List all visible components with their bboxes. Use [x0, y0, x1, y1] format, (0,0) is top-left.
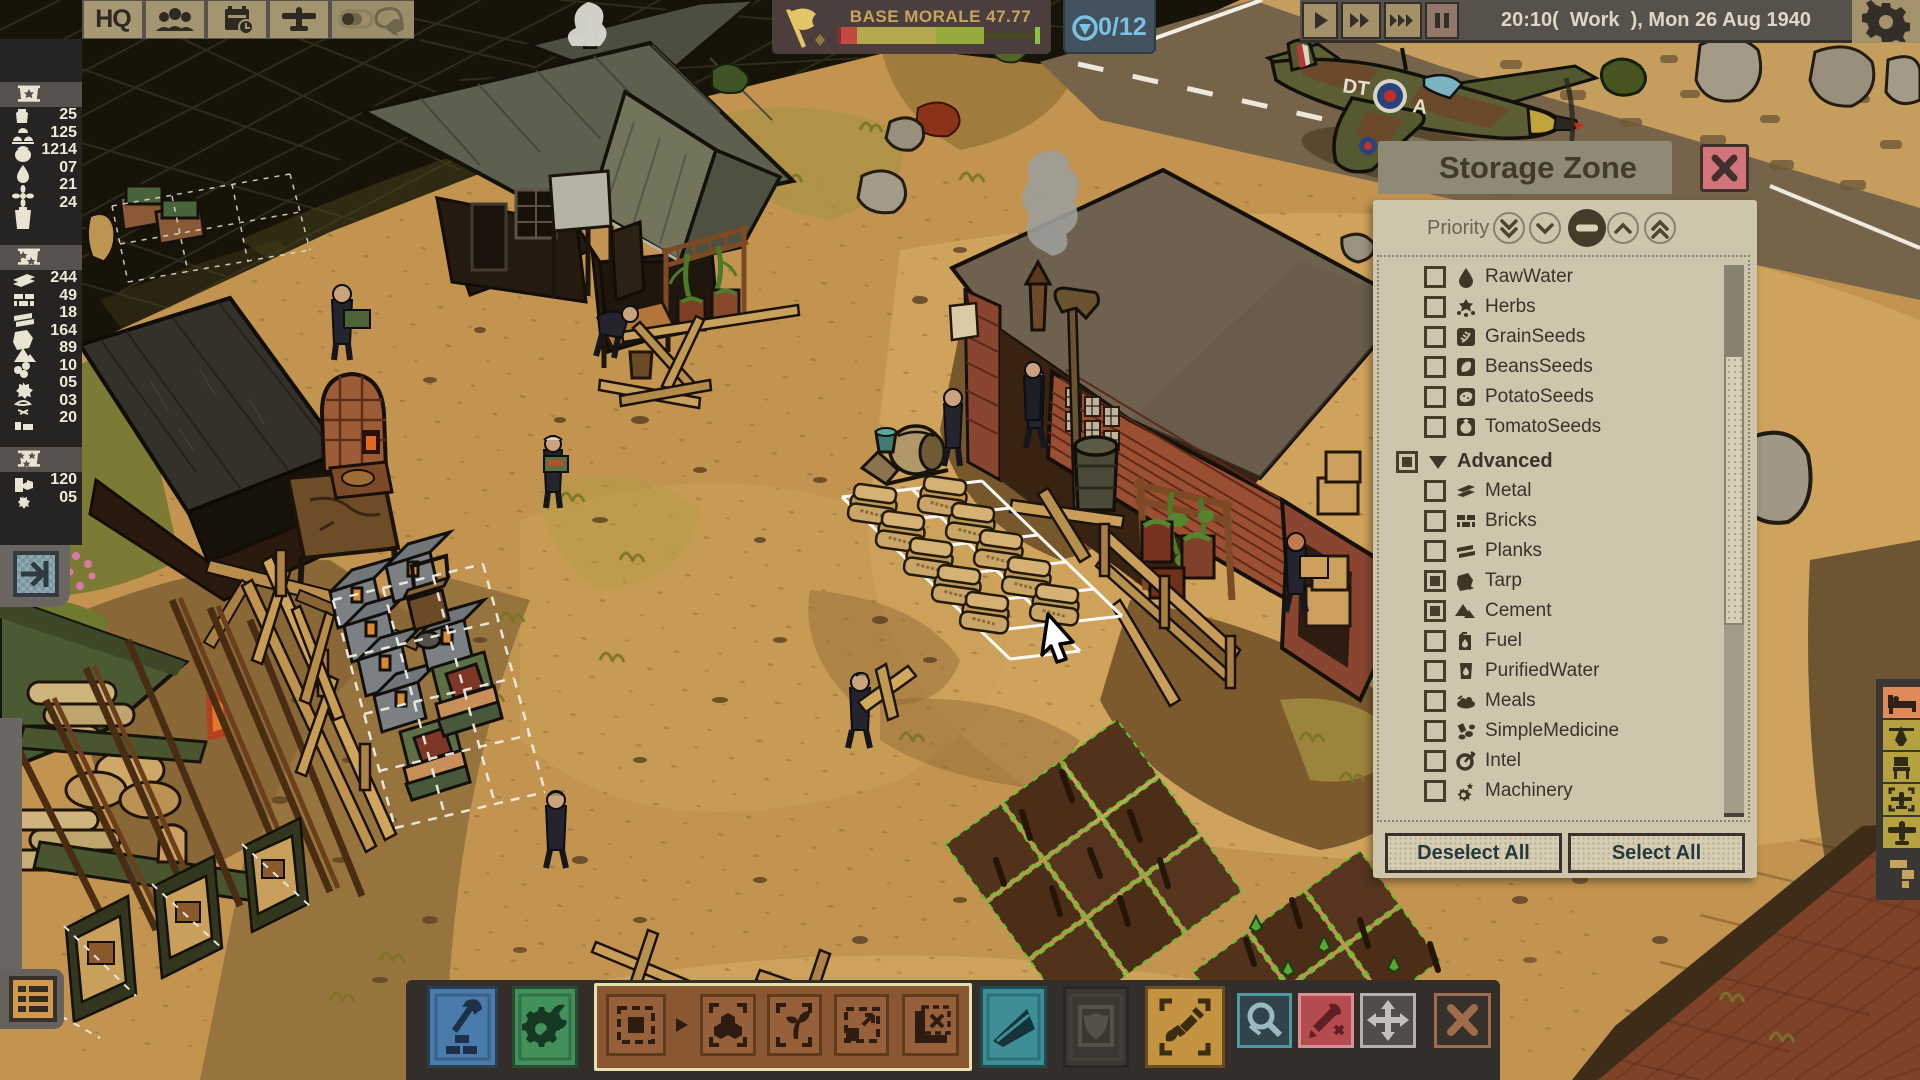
svg-text:DT: DT	[1341, 75, 1370, 100]
svg-text:A: A	[1411, 95, 1428, 119]
